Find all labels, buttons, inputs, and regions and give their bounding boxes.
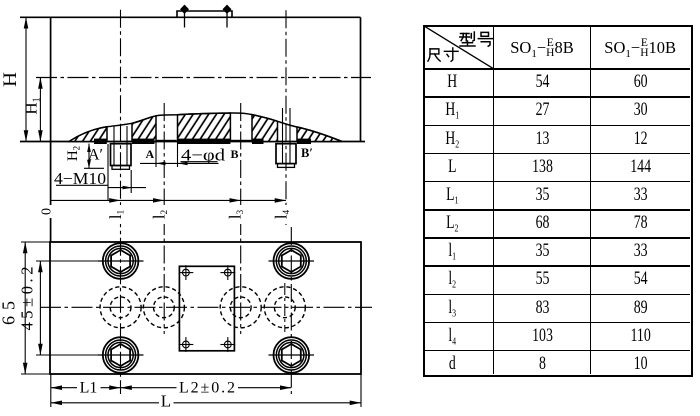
svg-text:l1: l1: [106, 210, 126, 219]
svg-text:H: H: [0, 72, 21, 87]
svg-text:65: 65: [0, 301, 19, 325]
svg-text:l3: l3: [226, 209, 246, 219]
svg-text:A′: A′: [88, 147, 103, 164]
svg-text:l2: l2: [150, 210, 170, 219]
svg-text:H2: H2: [65, 146, 82, 161]
svg-text:B: B: [231, 147, 239, 161]
svg-text:0: 0: [40, 208, 55, 215]
svg-text:A: A: [146, 147, 155, 161]
svg-text:45±0.2: 45±0.2: [18, 267, 37, 331]
svg-text:H1: H1: [22, 97, 43, 114]
svg-text:L1: L1: [80, 380, 98, 397]
svg-text:L2±0.2: L2±0.2: [179, 380, 235, 397]
svg-text:B′: B′: [301, 146, 313, 160]
svg-text:l4: l4: [272, 209, 292, 219]
svg-text:L: L: [161, 392, 171, 411]
